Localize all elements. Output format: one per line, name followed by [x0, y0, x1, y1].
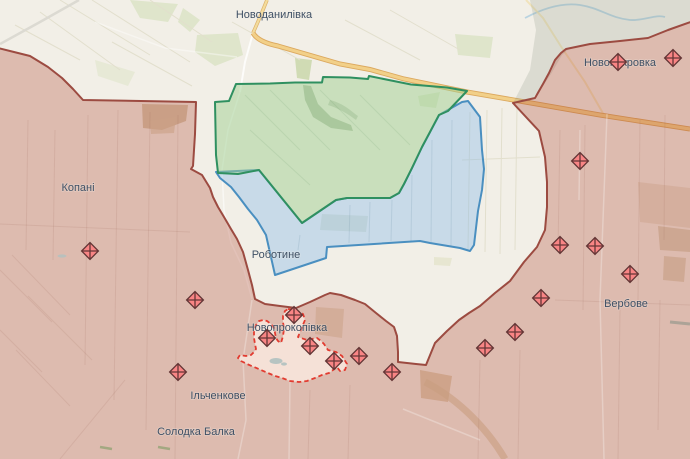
svg-text:Копані: Копані: [61, 182, 94, 194]
svg-text:Вербове: Вербове: [604, 298, 648, 310]
svg-text:Новоданилівка: Новоданилівка: [236, 9, 313, 21]
svg-text:Роботине: Роботине: [252, 249, 301, 261]
svg-text:Новопрокопівка: Новопрокопівка: [247, 322, 328, 334]
svg-text:Солодка Балка: Солодка Балка: [157, 426, 236, 438]
svg-text:Ільченкове: Ільченкове: [190, 390, 245, 402]
